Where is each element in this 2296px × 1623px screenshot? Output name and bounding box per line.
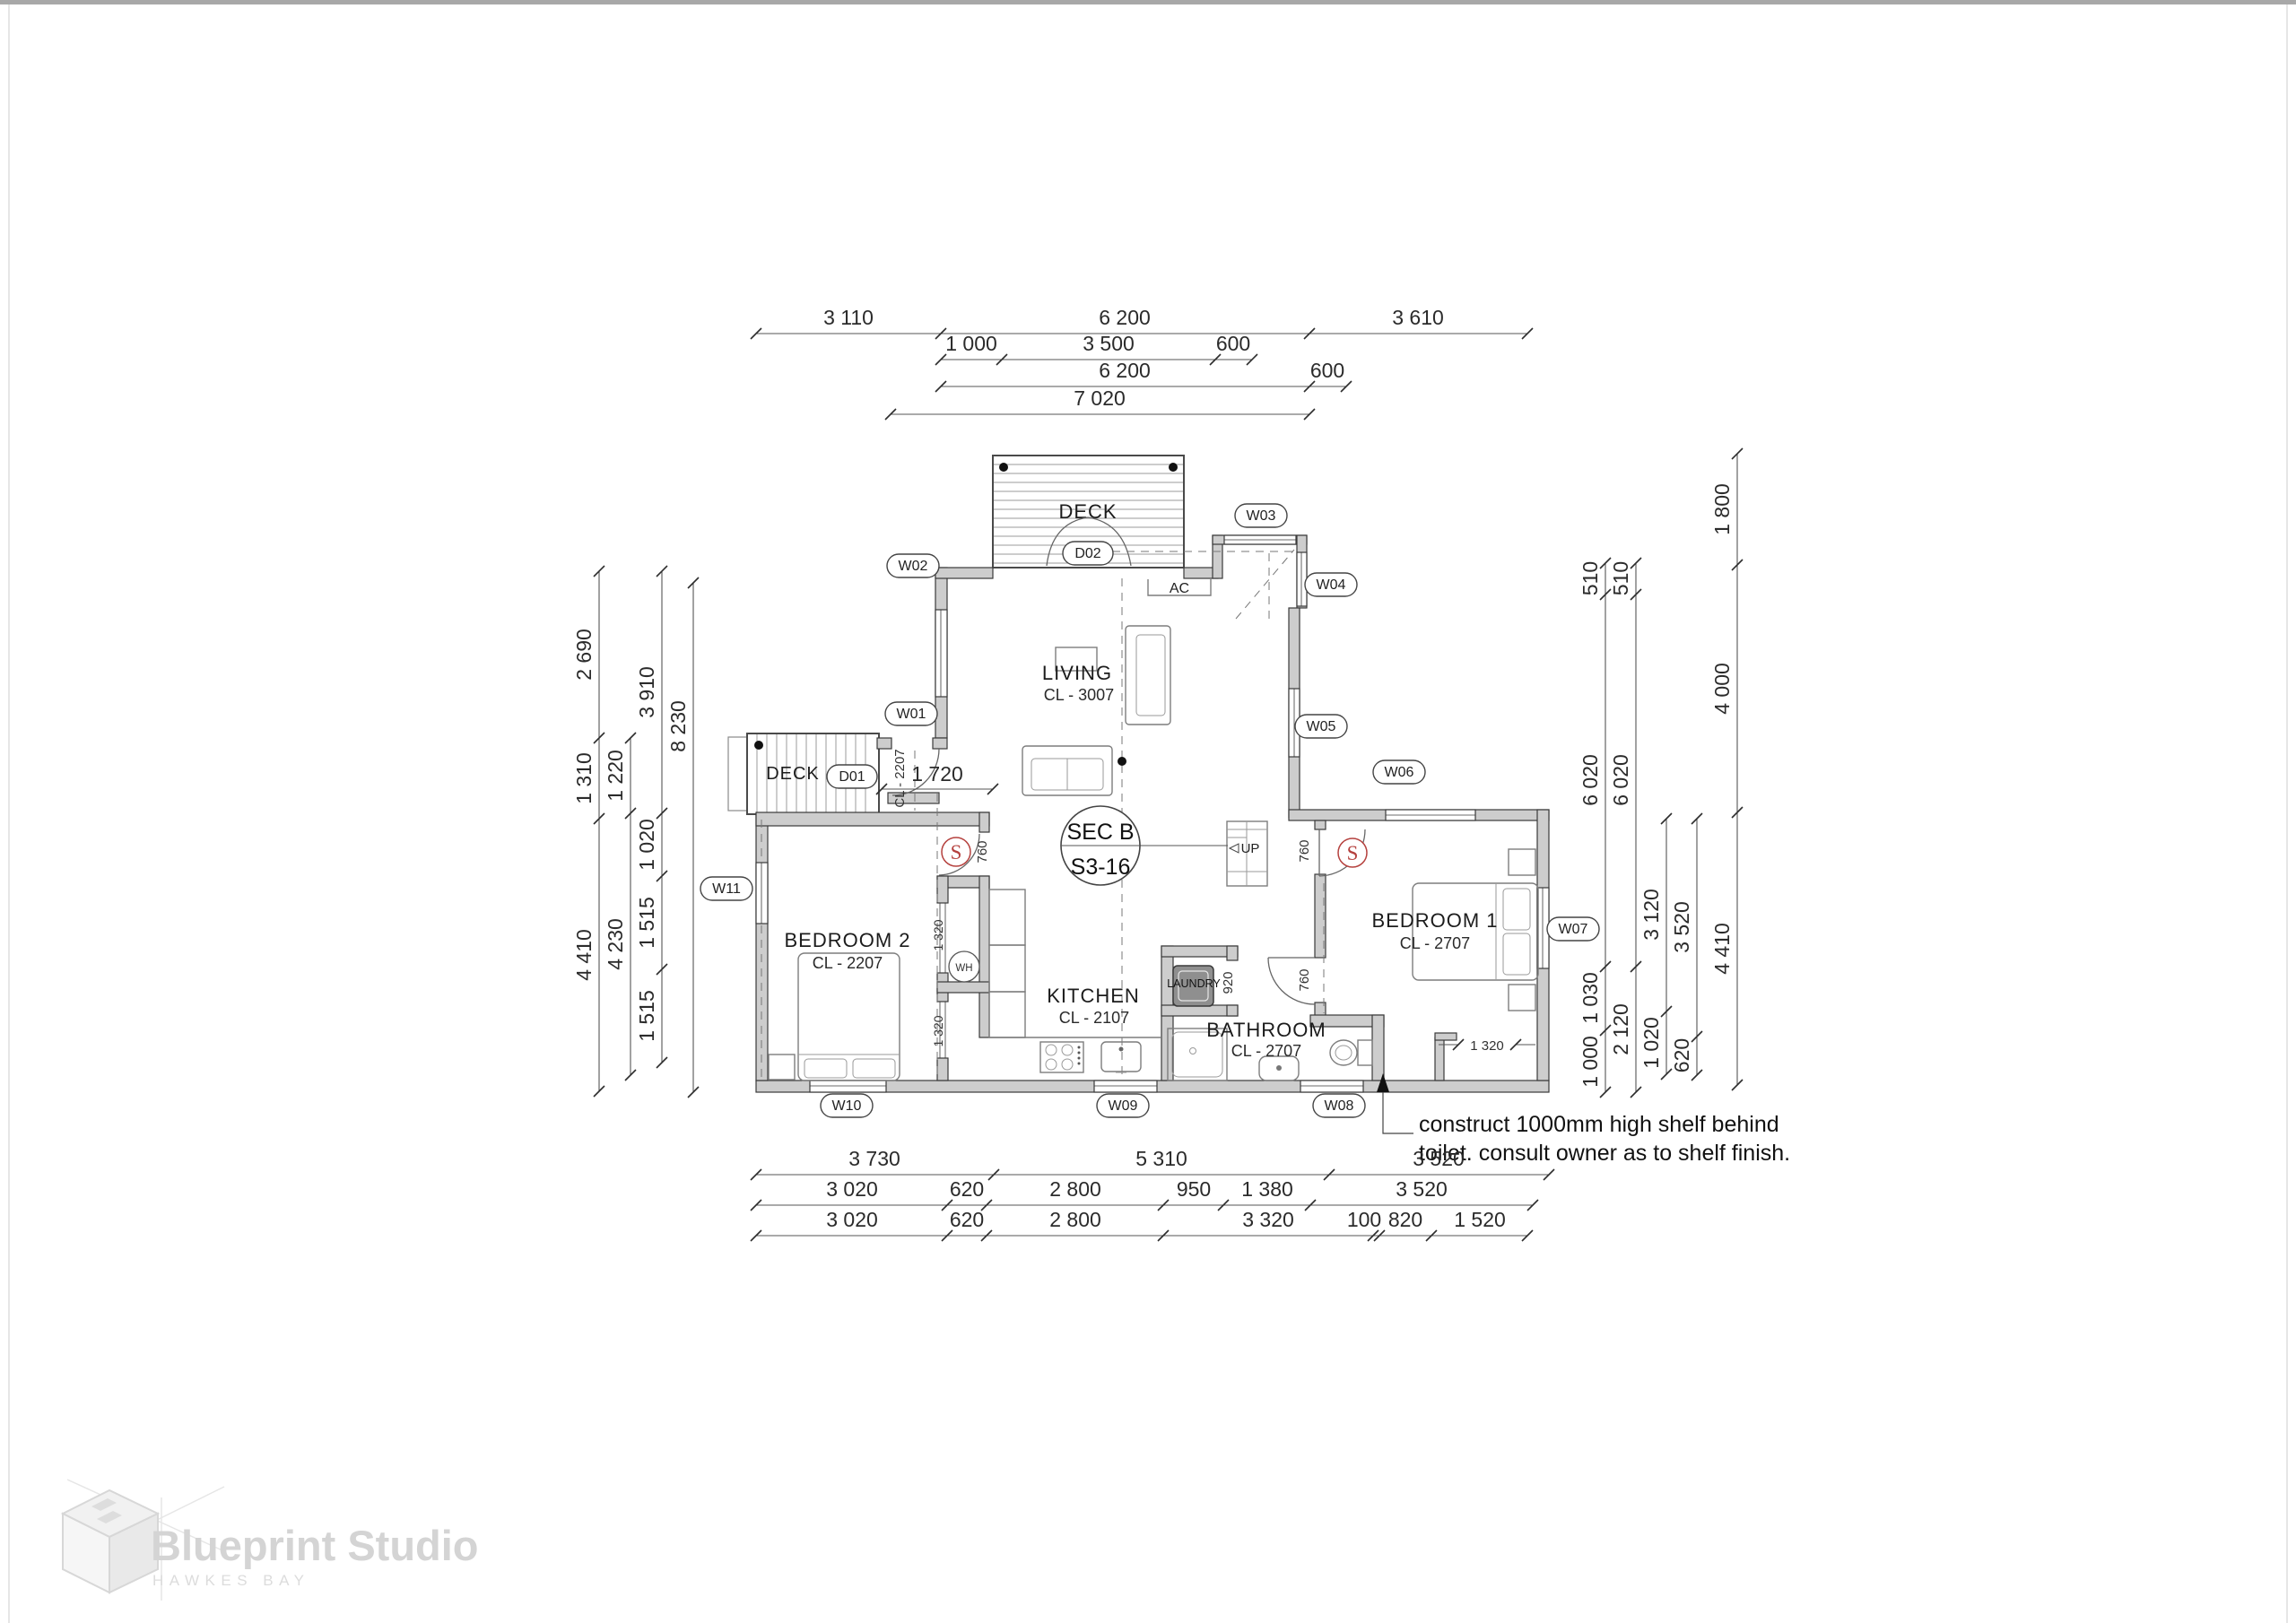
tag-w05: W05 (1295, 715, 1347, 738)
tag-w04: W04 (1305, 573, 1357, 596)
svg-text:W06: W06 (1385, 765, 1414, 780)
tag-w03: W03 (1235, 504, 1287, 527)
tag-w01: W01 (885, 702, 937, 725)
svg-text:820: 820 (1388, 1208, 1422, 1231)
svg-text:1 030: 1 030 (1578, 972, 1602, 1024)
svg-text:2 690: 2 690 (572, 629, 596, 681)
kitchen-label: KITCHEN (1047, 985, 1140, 1007)
note-line2: toilet. consult owner as to shelf finish… (1419, 1141, 1790, 1166)
kitchen-sink (1101, 1042, 1141, 1072)
svg-text:W11: W11 (712, 881, 741, 897)
bedroom1-cl: CL - 2707 (1400, 934, 1470, 952)
svg-text:W03: W03 (1247, 508, 1276, 524)
svg-text:1 515: 1 515 (635, 897, 658, 949)
bed-bedroom2 (769, 953, 900, 1081)
tag-d01: D01 (827, 765, 877, 788)
svg-text:W05: W05 (1307, 719, 1336, 734)
logo: Blueprint Studio HAWKES BAY (63, 1480, 479, 1601)
svg-text:620: 620 (950, 1177, 984, 1201)
svg-text:950: 950 (1177, 1177, 1211, 1201)
svg-text:4 230: 4 230 (604, 918, 627, 970)
svg-text:1 000: 1 000 (945, 332, 997, 355)
svg-text:1 020: 1 020 (635, 819, 658, 871)
svg-text:1 520: 1 520 (1454, 1208, 1506, 1231)
svg-text:8 230: 8 230 (666, 700, 690, 752)
bedroom2-label: BEDROOM 2 (784, 929, 910, 951)
svg-text:6 200: 6 200 (1099, 306, 1151, 329)
sofa (1126, 626, 1170, 725)
svg-text:3 520: 3 520 (1413, 1147, 1465, 1170)
svg-text:5 310: 5 310 (1135, 1147, 1187, 1170)
svg-text:620: 620 (1670, 1038, 1693, 1072)
deck-north-label: DECK (1058, 500, 1117, 523)
svg-text:W08: W08 (1325, 1098, 1354, 1114)
deck-post (754, 741, 763, 750)
svg-text:3 320: 3 320 (1242, 1208, 1294, 1231)
tag-w02: W02 (887, 554, 939, 577)
svg-text:2 800: 2 800 (1049, 1208, 1101, 1231)
svg-text:3 910: 3 910 (635, 666, 658, 718)
deck-post (1169, 463, 1178, 472)
svg-text:600: 600 (1216, 332, 1250, 355)
svg-text:4 410: 4 410 (1710, 923, 1734, 975)
svg-text:W09: W09 (1109, 1098, 1138, 1114)
svg-text:620: 620 (950, 1208, 984, 1231)
svg-text:100: 100 (1347, 1208, 1381, 1231)
deck-post (999, 463, 1008, 472)
living-label: LIVING (1042, 662, 1112, 684)
svg-text:3 520: 3 520 (1670, 901, 1693, 953)
smoke-alarm: S (1338, 838, 1367, 867)
basin (1259, 1056, 1299, 1081)
dimensions-left: 2 690 1 310 4 410 1 220 4 230 3 910 1 02… (572, 566, 699, 1098)
bedroom1-label: BEDROOM 1 (1371, 909, 1498, 932)
svg-text:6 020: 6 020 (1609, 754, 1632, 806)
svg-text:7 020: 7 020 (1074, 386, 1126, 410)
cooktop (1040, 1042, 1083, 1072)
floor-plan-sheet: DECK DECK (0, 0, 2296, 1623)
deck-west-label: DECK (766, 764, 820, 784)
svg-text:3 020: 3 020 (826, 1208, 878, 1231)
tag-w06: W06 (1373, 760, 1425, 784)
page-frame (0, 0, 2296, 1623)
svg-text:WH: WH (955, 963, 972, 974)
svg-text:1 000: 1 000 (1578, 1036, 1602, 1088)
svg-text:1 515: 1 515 (635, 990, 658, 1042)
dimensions-right: 510 6 020 1 030 1 000 510 6 020 2 120 3 … (1578, 448, 1743, 1098)
logo-studio-name: Blueprint Studio (151, 1522, 479, 1569)
svg-text:3 730: 3 730 (848, 1147, 900, 1170)
note-line1: construct 1000mm high shelf behind (1419, 1112, 1779, 1137)
svg-text:1 380: 1 380 (1241, 1177, 1293, 1201)
svg-text:1 800: 1 800 (1710, 483, 1734, 535)
svg-text:1 320: 1 320 (1470, 1038, 1504, 1054)
smoke-alarm: S (942, 838, 970, 866)
svg-text:920: 920 (1221, 971, 1236, 994)
svg-text:1 720: 1 720 (911, 762, 963, 785)
svg-text:3 110: 3 110 (823, 306, 874, 329)
svg-text:4 000: 4 000 (1710, 663, 1734, 715)
svg-text:3 020: 3 020 (826, 1177, 878, 1201)
svg-text:510: 510 (1609, 561, 1632, 595)
kitchen-cl: CL - 2107 (1059, 1009, 1129, 1027)
svg-text:1 320: 1 320 (931, 1015, 945, 1046)
svg-text:1 310: 1 310 (572, 752, 596, 804)
svg-text:W02: W02 (899, 559, 928, 574)
water-heater: WH (949, 951, 979, 982)
bedroom2-cl: CL - 2207 (813, 954, 883, 972)
svg-text:6 200: 6 200 (1099, 359, 1151, 382)
logo-location: HAWKES BAY (152, 1572, 310, 1589)
living-cl: CL - 3007 (1044, 686, 1114, 704)
svg-text:W07: W07 (1559, 922, 1588, 937)
section-ref-top: SEC B (1066, 820, 1134, 845)
bathroom-label: BATHROOM (1206, 1019, 1326, 1041)
entry-cl: CL - 2207 (892, 749, 908, 807)
svg-text:760: 760 (975, 840, 990, 863)
svg-text:4 410: 4 410 (572, 929, 596, 981)
section-marker: SEC B S3-16 UP (1061, 806, 1259, 885)
svg-text:1 220: 1 220 (604, 750, 627, 802)
stairs-up-label: UP (1241, 841, 1260, 856)
svg-text:510: 510 (1578, 561, 1602, 595)
svg-text:3 500: 3 500 (1083, 332, 1135, 355)
dimensions-bottom: 3 730 5 310 3 520 3 020 620 2 800 950 1 … (751, 1147, 1554, 1241)
svg-text:D02: D02 (1074, 546, 1100, 561)
svg-text:760: 760 (1297, 839, 1312, 862)
tag-w11: W11 (700, 877, 752, 900)
toilet (1330, 1040, 1372, 1065)
svg-text:2 120: 2 120 (1609, 1003, 1632, 1055)
svg-text:W01: W01 (897, 707, 926, 722)
svg-text:760: 760 (1297, 968, 1312, 991)
svg-text:S: S (951, 841, 962, 864)
bathroom-cl: CL - 2707 (1231, 1042, 1301, 1060)
svg-text:1 320: 1 320 (931, 919, 945, 950)
svg-text:D01: D01 (839, 769, 865, 785)
dimensions-top: 3 110 6 200 3 610 1 000 3 500 600 6 200 … (751, 306, 1533, 420)
svg-text:3 520: 3 520 (1396, 1177, 1448, 1201)
tag-d02: D02 (1063, 542, 1113, 565)
tag-w07: W07 (1547, 917, 1599, 941)
section-ref-bottom: S3-16 (1071, 855, 1131, 880)
svg-text:600: 600 (1310, 359, 1344, 382)
svg-text:6 020: 6 020 (1578, 754, 1602, 806)
svg-text:W10: W10 (832, 1098, 862, 1114)
furniture: WH (769, 579, 1538, 1081)
tag-w08: W08 (1313, 1094, 1365, 1117)
svg-text:W04: W04 (1317, 577, 1346, 593)
svg-text:3 610: 3 610 (1392, 306, 1444, 329)
ac-label: AC (1170, 581, 1189, 596)
svg-text:S: S (1347, 842, 1359, 864)
laundry-label: LAUNDRY (1167, 977, 1221, 990)
tag-w09: W09 (1097, 1094, 1149, 1117)
tag-w10: W10 (821, 1094, 873, 1117)
svg-text:2 800: 2 800 (1049, 1177, 1101, 1201)
svg-text:3 120: 3 120 (1639, 889, 1663, 941)
svg-text:1 020: 1 020 (1639, 1017, 1663, 1069)
